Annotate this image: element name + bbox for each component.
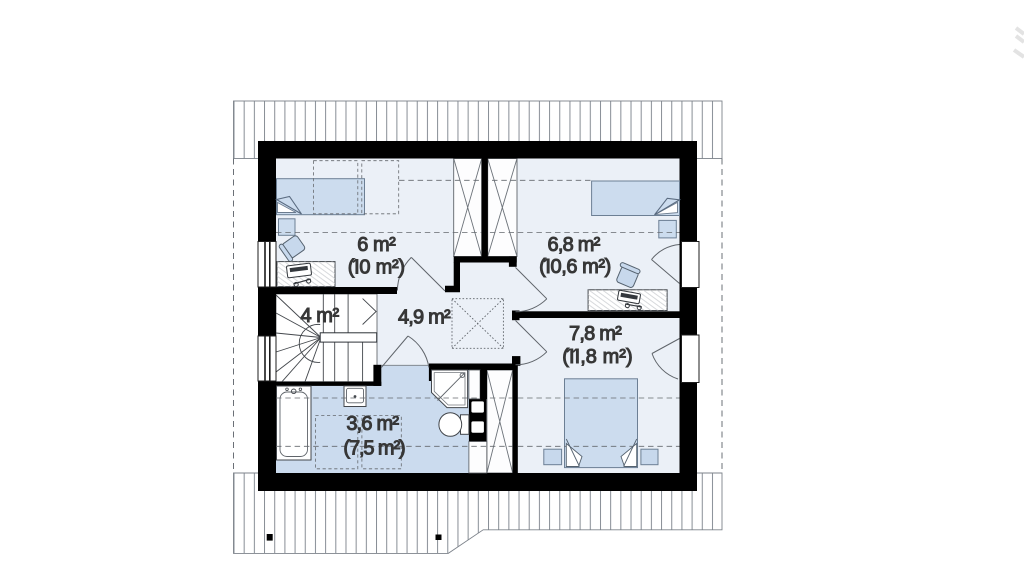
svg-text:6,8 m²: 6,8 m² <box>548 234 601 256</box>
svg-text:4,9 m²: 4,9 m² <box>398 307 451 329</box>
svg-text:(I0,6 m²): (I0,6 m²) <box>539 256 611 278</box>
svg-text:7,8 m²: 7,8 m² <box>569 323 622 345</box>
svg-text:(7,5 m²): (7,5 m²) <box>343 438 405 460</box>
svg-text:4 m²: 4 m² <box>300 305 339 327</box>
svg-text:(II,8 m²): (II,8 m²) <box>562 346 632 368</box>
svg-text:6 m²: 6 m² <box>357 234 396 256</box>
svg-text:3,6 m²: 3,6 m² <box>346 413 399 435</box>
